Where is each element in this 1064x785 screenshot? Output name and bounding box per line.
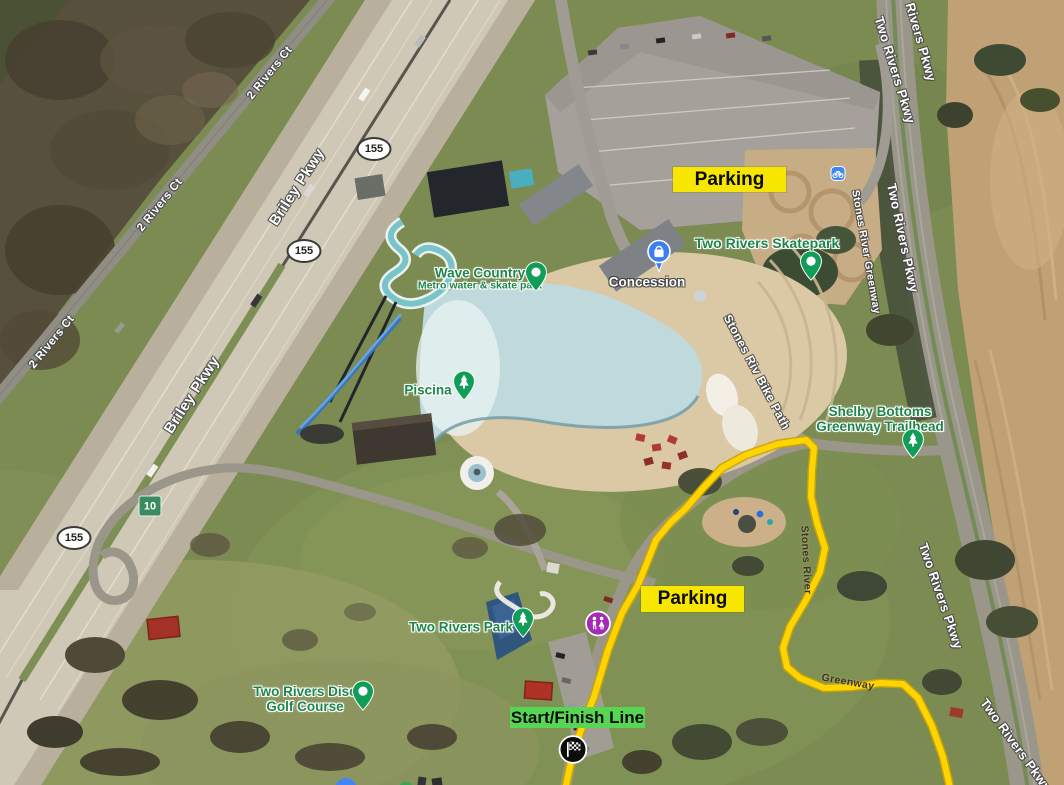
bike-track-icon: [831, 166, 846, 186]
poi-pin-piscina-tree-icon: [453, 370, 476, 406]
route-shield-155: 155: [287, 239, 322, 263]
road-label-2-rivers-ct: 2 Rivers Ct: [245, 44, 295, 102]
route-shield-155: 155: [357, 137, 392, 161]
road-label-2-rivers-ct: 2 Rivers Ct: [135, 176, 185, 234]
start-finish-line-label: Start/Finish Line: [510, 707, 645, 728]
poi-pin-two-rivers-skatepark-icon: [800, 250, 823, 286]
poi-label-two-rivers-disc-golf-course: Two Rivers DiscGolf Course: [253, 684, 356, 714]
road-label-two-rivers-pkwy: Two Rivers Pkwy: [977, 696, 1055, 785]
road-label-stones-riv-bike-path: Stones Riv Bike Path: [721, 312, 793, 432]
poi-pin-two-rivers-park-tree-icon: [512, 607, 535, 643]
poi-label-two-rivers-park: Two Rivers Park: [409, 619, 513, 634]
restroom-icon: [584, 610, 612, 643]
road-label-briley-pkwy: Briley Pkwy: [161, 353, 224, 437]
route-shield-155: 155: [57, 526, 92, 550]
poi-pin-wave-country-icon: [525, 261, 548, 297]
race-course-map: 2 Rivers Ct2 Rivers Ct2 Rivers CtBriley …: [0, 0, 1064, 785]
poi-label-wave-country: Wave CountryMetro water & skate park: [418, 266, 542, 293]
road-label-two-rivers-pkwy: Two Rivers Pkwy: [884, 182, 922, 294]
poi-pin-shelby-bottoms-greenway-trailhead-tree-icon: [902, 428, 925, 464]
road-label-briley-pkwy: Briley Pkwy: [266, 145, 329, 229]
road-label-rivers-pkwy: Rivers Pkwy: [903, 1, 940, 83]
route-shield-10: 10: [139, 496, 162, 517]
concession-shopping-bag-icon: [646, 239, 672, 280]
road-label-stones-river-greenway: Stones River Greenway: [849, 189, 883, 315]
poi-label-piscina: Piscina: [404, 382, 451, 397]
checkered-flag-icon: [557, 734, 589, 771]
parking-label-middle: Parking: [641, 586, 744, 612]
parking-label-top: Parking: [673, 167, 786, 192]
road-label-greenway: Greenway: [821, 671, 876, 692]
poi-pin-two-rivers-disc-golf-course-icon: [352, 680, 375, 716]
road-label-two-rivers-pkwy: Two Rivers Pkwy: [916, 541, 966, 651]
road-label-stones-river: Stones River: [798, 525, 814, 595]
map-labels-layer: 2 Rivers Ct2 Rivers Ct2 Rivers CtBriley …: [0, 0, 1064, 785]
poi-label-shelby-bottoms-greenway-trailhead: Shelby BottomsGreenway Trailhead: [816, 404, 944, 434]
road-label-2-rivers-ct: 2 Rivers Ct: [27, 313, 77, 371]
